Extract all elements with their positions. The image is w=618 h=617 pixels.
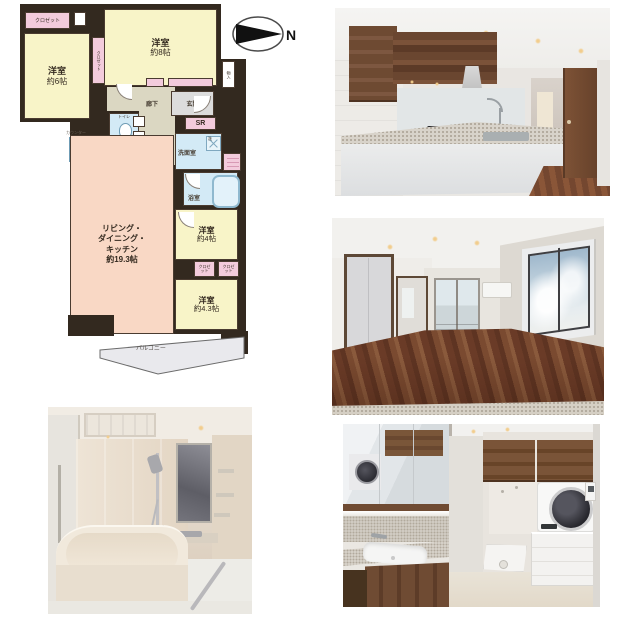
- upper-cabinet-right: [537, 440, 593, 482]
- room-bedroom-6: 洋室 約6帖: [24, 33, 90, 119]
- storage-label: 物入: [226, 71, 230, 79]
- downlight-icon: [474, 240, 480, 246]
- room-size: 約8帖: [150, 48, 170, 57]
- sink-drain: [391, 556, 395, 560]
- micro-text-line: [227, 158, 239, 159]
- ldk-label-3: キッチン: [98, 245, 146, 255]
- room-bedroom-8: 洋室 約8帖: [104, 9, 217, 86]
- under-cabinet-light: [435, 82, 439, 86]
- ldk-label-2: ダイニング・: [98, 234, 146, 244]
- room-label: 洋室: [151, 38, 169, 48]
- room-label: 洋室: [48, 66, 66, 76]
- downlight-icon: [432, 236, 438, 242]
- right-wall: [212, 435, 252, 565]
- mirror-seam: [379, 424, 380, 504]
- door-handle-bar: [58, 465, 61, 543]
- upper-cabinet: [393, 32, 497, 84]
- upper-cabinet-left: [349, 26, 397, 102]
- washer-place-symbol: 洗: [206, 136, 221, 151]
- closet-label: クロゼット: [35, 17, 60, 24]
- closet-middle: クロゼット: [92, 37, 105, 84]
- hallway-label: 廊下: [146, 99, 158, 108]
- pan-drain: [499, 560, 508, 569]
- photo-bathroom: [48, 407, 252, 614]
- shelf: [218, 469, 234, 473]
- drawer-chest: [531, 532, 600, 586]
- ldk-label-1: リビング・: [98, 224, 146, 234]
- room-bedroom-4-3: 洋室 約4.3帖: [175, 279, 238, 330]
- wall-hook: [501, 490, 504, 493]
- closet-label: クロゼット: [198, 265, 212, 273]
- utility-box: [223, 153, 241, 171]
- closet-a: クロゼット: [194, 261, 215, 277]
- photo-washroom: [343, 424, 600, 607]
- closet-top-left: クロゼット: [25, 12, 70, 29]
- vanity-cabinet: [365, 562, 459, 607]
- floor-strip: [48, 601, 252, 614]
- washer-label: 洗: [208, 137, 212, 141]
- panel-screen: [588, 486, 594, 492]
- closet-label: クロゼット: [96, 51, 100, 71]
- mirror-seam: [413, 424, 414, 504]
- closet-b: クロゼット: [218, 261, 239, 277]
- photo-living-dining: [332, 218, 604, 415]
- ldk-label-4: 約19.3帖: [98, 255, 146, 265]
- bathtub-icon: [212, 175, 240, 208]
- upper-cabinet-left: [483, 440, 535, 482]
- shoes-room: SR: [185, 117, 216, 130]
- cabinet-shelf-strip: [343, 504, 449, 511]
- shelf: [214, 513, 230, 517]
- downlight-icon: [471, 429, 476, 434]
- ceiling-vent: [84, 413, 156, 437]
- shelf: [216, 493, 234, 497]
- air-conditioner: [482, 282, 512, 298]
- listing-collage: 洋室 約8帖 クロゼット 洋室 約6帖 クロゼット 廊下 玄関 物入 SR: [0, 0, 618, 617]
- balcony-label: バルコニー: [136, 343, 166, 352]
- shoes-room-label: SR: [196, 120, 206, 127]
- wall-cabinet-1: [133, 116, 145, 127]
- washer-controls: [541, 524, 557, 529]
- granite-backsplash: [343, 516, 455, 542]
- bathroom-label: 浴室: [188, 193, 200, 202]
- room-size: 約4帖: [197, 235, 216, 244]
- storage-strip-1: [146, 78, 164, 87]
- mirror-reflection-wood: [385, 430, 443, 456]
- downlight-icon: [198, 425, 204, 431]
- kitchen-sink: [483, 132, 529, 141]
- downlight-icon: [387, 244, 393, 250]
- plan-small-box: [74, 12, 86, 26]
- right-wall-strip: [593, 424, 600, 607]
- balcony-shape: [94, 334, 248, 376]
- window-mullion: [558, 248, 560, 332]
- right-wall: [597, 60, 610, 186]
- room-size: 約6帖: [47, 77, 67, 86]
- mirror: [176, 443, 212, 523]
- wall-control-panel: [585, 482, 596, 501]
- photo-kitchen: [335, 8, 610, 196]
- washroom-label: 洗面室: [178, 148, 196, 157]
- wall-block: [68, 315, 114, 336]
- room-size: 約4.3帖: [194, 305, 219, 314]
- compass-icon: N: [230, 10, 302, 56]
- storage-strip-2: [168, 78, 213, 87]
- micro-text-line: [227, 166, 239, 167]
- micro-text-line: [227, 162, 239, 163]
- mirror-reflection-washer-door: [355, 460, 379, 484]
- far-window-light: [402, 288, 414, 318]
- downlight-icon: [578, 48, 584, 54]
- closet-label: クロゼット: [222, 265, 236, 273]
- door-handle: [567, 120, 571, 124]
- downlight-icon: [535, 38, 541, 44]
- mirror-cabinet: [343, 424, 452, 504]
- laundry-alcove: [489, 482, 537, 534]
- storage-box: 物入: [222, 61, 235, 88]
- floor-plan: 洋室 約8帖 クロゼット 洋室 約6帖 クロゼット 廊下 玄関 物入 SR: [8, 4, 308, 376]
- under-cabinet-light: [410, 80, 414, 84]
- vanity-cabinet-side: [343, 570, 367, 607]
- room-ldk: リビング・ ダイニング・ キッチン 約19.3帖: [70, 135, 174, 334]
- compass-north-label: N: [286, 27, 296, 43]
- wall-hook: [515, 486, 518, 489]
